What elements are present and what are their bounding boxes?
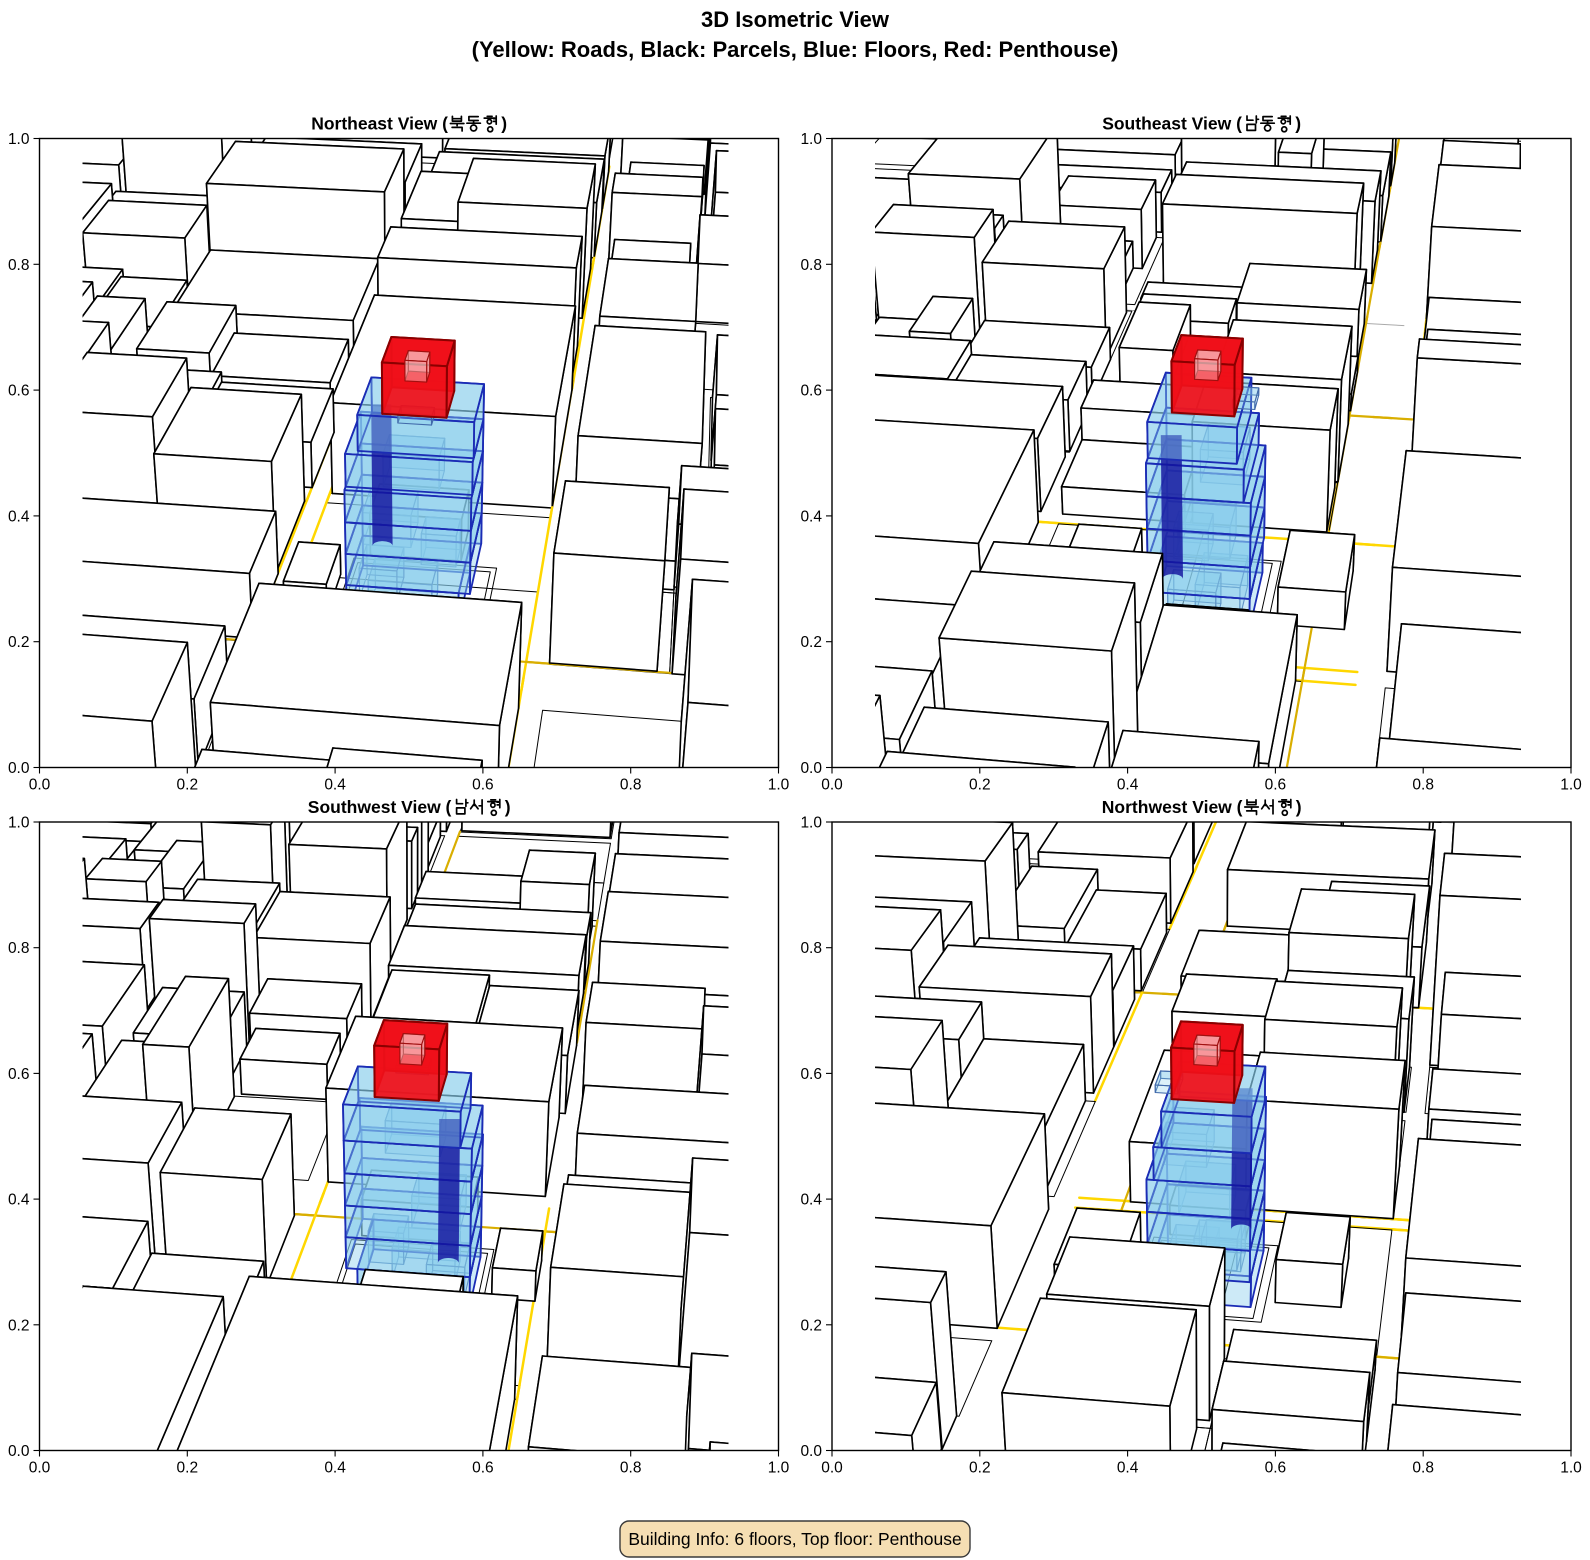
svg-text:0.4: 0.4 [324, 777, 346, 794]
svg-text:0.4: 0.4 [8, 1192, 30, 1209]
svg-text:0.4: 0.4 [800, 508, 822, 525]
svg-text:(Yellow: Roads, Black: Parcels: (Yellow: Roads, Black: Parcels, Blue: Fl… [472, 37, 1119, 62]
svg-text:0.0: 0.0 [29, 1460, 51, 1477]
svg-text:Southeast View (: Southeast View ( [1102, 114, 1242, 134]
svg-text:1.0: 1.0 [8, 815, 30, 832]
svg-text:0.2: 0.2 [8, 634, 30, 651]
svg-text:Northwest View (: Northwest View ( [1102, 797, 1243, 817]
svg-text:0.8: 0.8 [1412, 777, 1434, 794]
svg-text:): ) [1295, 114, 1301, 134]
svg-text:0.8: 0.8 [8, 940, 30, 957]
svg-text:0.0: 0.0 [8, 1443, 30, 1460]
svg-text:0.6: 0.6 [472, 777, 494, 794]
svg-text:0.2: 0.2 [969, 777, 991, 794]
svg-text:0.6: 0.6 [1265, 1460, 1287, 1477]
svg-text:0.2: 0.2 [800, 1317, 822, 1334]
svg-text:0.0: 0.0 [800, 760, 822, 777]
svg-text:0.6: 0.6 [8, 1066, 30, 1083]
svg-text:0.4: 0.4 [8, 508, 30, 525]
svg-text:0.2: 0.2 [177, 1460, 199, 1477]
svg-text:0.6: 0.6 [1265, 777, 1287, 794]
svg-text:Southwest View (: Southwest View ( [308, 797, 452, 817]
svg-text:0.2: 0.2 [969, 1460, 991, 1477]
svg-text:0.8: 0.8 [620, 1460, 642, 1477]
svg-text:0.6: 0.6 [800, 383, 822, 400]
svg-text:): ) [505, 797, 511, 817]
svg-text:Building Info: 6 floors, Top f: Building Info: 6 floors, Top floor: Pent… [628, 1529, 961, 1549]
svg-text:0.0: 0.0 [800, 1443, 822, 1460]
svg-text:0.4: 0.4 [324, 1460, 346, 1477]
svg-text:0.2: 0.2 [177, 777, 199, 794]
svg-text:1.0: 1.0 [768, 777, 790, 794]
svg-text:0.6: 0.6 [800, 1066, 822, 1083]
svg-text:0.4: 0.4 [1117, 1460, 1139, 1477]
svg-text:3D Isometric View: 3D Isometric View [701, 7, 890, 32]
svg-text:0.6: 0.6 [8, 383, 30, 400]
svg-text:1.0: 1.0 [1560, 777, 1582, 794]
svg-text:0.8: 0.8 [800, 257, 822, 274]
svg-text:1.0: 1.0 [800, 131, 822, 148]
svg-text:1.0: 1.0 [768, 1460, 790, 1477]
svg-text:): ) [1296, 797, 1302, 817]
svg-text:0.8: 0.8 [620, 777, 642, 794]
svg-text:0.8: 0.8 [800, 940, 822, 957]
svg-text:0.2: 0.2 [800, 634, 822, 651]
svg-text:0.8: 0.8 [1412, 1460, 1434, 1477]
svg-text:0.0: 0.0 [8, 760, 30, 777]
svg-text:0.8: 0.8 [8, 257, 30, 274]
svg-text:): ) [501, 114, 507, 134]
svg-text:0.6: 0.6 [472, 1460, 494, 1477]
svg-text:1.0: 1.0 [800, 815, 822, 832]
svg-text:0.0: 0.0 [821, 777, 843, 794]
svg-text:1.0: 1.0 [8, 131, 30, 148]
svg-text:0.4: 0.4 [800, 1192, 822, 1209]
svg-text:Northeast View (: Northeast View ( [311, 114, 448, 134]
svg-text:1.0: 1.0 [1560, 1460, 1582, 1477]
svg-text:0.0: 0.0 [29, 777, 51, 794]
svg-text:0.2: 0.2 [8, 1317, 30, 1334]
svg-text:0.0: 0.0 [821, 1460, 843, 1477]
svg-text:0.4: 0.4 [1117, 777, 1139, 794]
